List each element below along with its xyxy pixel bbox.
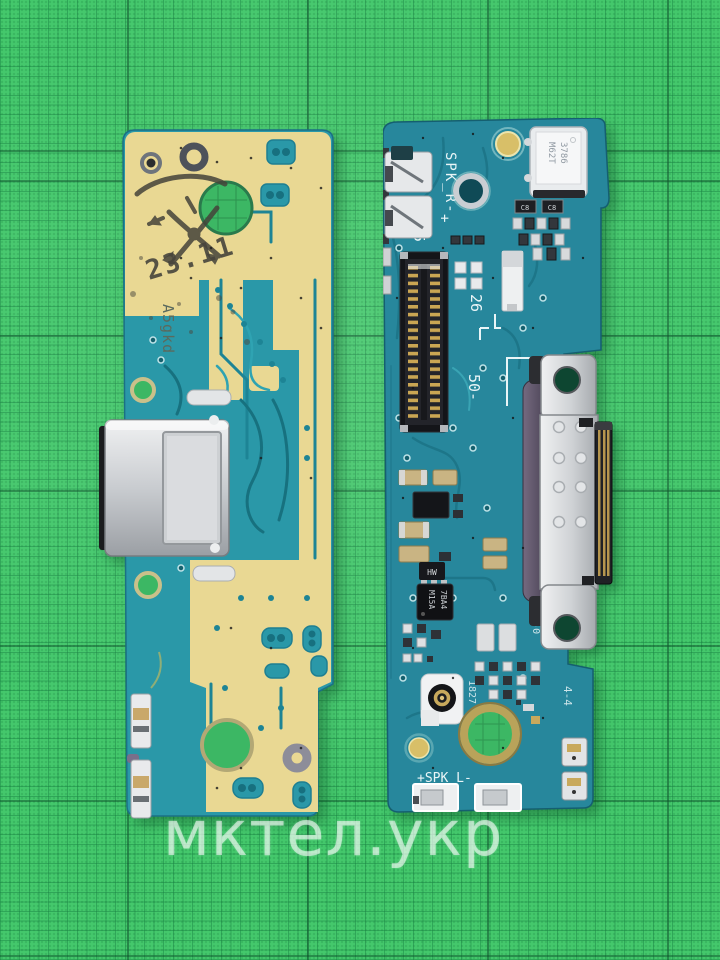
usb-flange-hole-top <box>554 367 580 393</box>
speaker-contacts-right-board-top <box>383 148 432 244</box>
label-pin26: 26 <box>467 294 485 312</box>
cap-label-1: C8 <box>521 204 529 212</box>
mic-marking-1: M62T <box>546 142 556 164</box>
transistor-hw: HW <box>419 562 447 585</box>
usb-tongue <box>595 422 612 584</box>
board-to-board-connector <box>400 252 448 432</box>
crystal-component <box>502 251 523 311</box>
transistor-label: HW <box>427 568 437 577</box>
board-marking-a5gkd: A5gkd <box>159 304 177 354</box>
usb-connector-back <box>99 420 229 556</box>
alignment-hole-bottom <box>202 720 252 770</box>
cap-label-2: C8 <box>548 204 556 212</box>
label-plus: + <box>436 214 452 222</box>
ic-marking-1: M15A <box>427 590 436 609</box>
usb-connector-front <box>523 355 612 649</box>
label-4-4: 4-4 <box>561 686 574 706</box>
photo-canvas: 23.11 A5gkd <box>0 0 720 960</box>
ic-marking-2: 7BA4 <box>439 590 448 609</box>
gold-test-pad-bottom <box>406 735 433 762</box>
plated-hole-top <box>452 172 490 210</box>
gold-test-pad-top <box>496 132 520 156</box>
left-board-solder-side: 23.11 A5gkd <box>97 128 337 824</box>
usb-bracket-body <box>540 415 598 589</box>
microphone: M62T 3786 <box>524 127 587 198</box>
mic-marking-2: 3786 <box>558 142 568 164</box>
alignment-hole-top <box>200 182 252 234</box>
watermark: мктел.укр <box>163 797 503 870</box>
coax-antenna-connector <box>421 674 463 726</box>
mount-hole-lower <box>136 573 160 597</box>
ic-power-1 <box>413 492 449 518</box>
ic-power-2: M15A 7BA4 <box>417 584 453 620</box>
mount-hole-upper <box>132 379 154 401</box>
right-board-component-side: SPK_R- + 25 26 50- +SPK_L- 94V-0 GF-N 18… <box>383 118 615 818</box>
label-pin50: 50- <box>465 374 483 401</box>
mount-hole-brass-ring <box>459 703 521 765</box>
usb-flange-hole-bottom <box>554 615 580 641</box>
